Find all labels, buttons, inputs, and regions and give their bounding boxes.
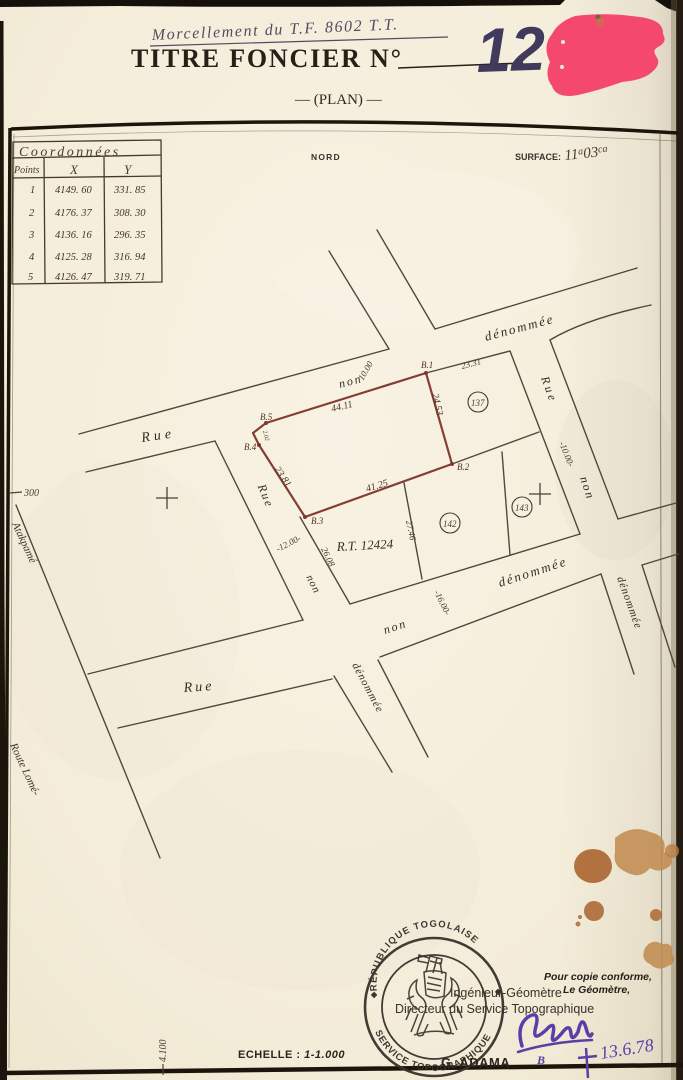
svg-text:296. 35: 296. 35 (114, 230, 146, 241)
svg-text:143: 143 (515, 503, 529, 513)
svg-text:NORD: NORD (311, 152, 341, 162)
svg-text:319. 71: 319. 71 (113, 272, 146, 283)
svg-text:3: 3 (28, 230, 34, 241)
svg-text:TITRE FONCIER N°: TITRE FONCIER N° (131, 44, 403, 73)
svg-text:Pour copie conforme,: Pour copie conforme, (544, 971, 652, 983)
svg-text:B.4: B.4 (244, 442, 257, 452)
svg-text:4149. 60: 4149. 60 (55, 185, 93, 196)
svg-text:4.100: 4.100 (158, 1040, 169, 1063)
svg-text:G. ADAMA: G. ADAMA (441, 1055, 510, 1070)
svg-text:331. 85: 331. 85 (113, 185, 146, 196)
svg-text:Le Géomètre,: Le Géomètre, (563, 984, 630, 996)
svg-text:B: B (536, 1053, 545, 1067)
svg-text:4126. 47: 4126. 47 (55, 272, 93, 283)
svg-text:4: 4 (29, 252, 35, 263)
svg-text:308. 30: 308. 30 (113, 208, 146, 219)
svg-text:Directeur du Service Topograph: Directeur du Service Topographique (395, 1002, 594, 1016)
svg-text:12: 12 (475, 15, 546, 86)
svg-text:300: 300 (23, 488, 39, 499)
svg-text:B.5: B.5 (260, 412, 273, 422)
svg-text:Points: Points (13, 165, 40, 176)
svg-text:316. 94: 316. 94 (113, 252, 146, 263)
svg-text:— (PLAN) —: — (PLAN) — (294, 92, 383, 108)
svg-text:4176. 37: 4176. 37 (55, 208, 93, 219)
svg-text:142: 142 (443, 519, 457, 529)
svg-text:5: 5 (28, 272, 33, 283)
svg-text:Rue: Rue (182, 679, 215, 696)
svg-text:B.1: B.1 (421, 360, 433, 370)
svg-text:B.2: B.2 (457, 462, 470, 472)
svg-text:R.T. 12424: R.T. 12424 (335, 536, 394, 554)
svg-text:ECHELLE : 1-1.000: ECHELLE : 1-1.000 (238, 1049, 345, 1061)
svg-text:4125. 28: 4125. 28 (55, 252, 93, 263)
svg-text:B.3: B.3 (311, 516, 324, 526)
svg-text:Coordonnées: Coordonnées (19, 145, 121, 160)
svg-text:SURFACE:: SURFACE: (515, 152, 561, 162)
svg-text:Ingénieur-Géomètre: Ingénieur-Géomètre (450, 986, 562, 1000)
svg-text:X: X (69, 162, 79, 177)
svg-text:◆: ◆ (370, 990, 378, 999)
svg-text:1: 1 (30, 185, 35, 196)
svg-text:2: 2 (29, 208, 35, 219)
svg-text:137: 137 (471, 398, 485, 408)
svg-text:4136. 16: 4136. 16 (55, 230, 93, 241)
